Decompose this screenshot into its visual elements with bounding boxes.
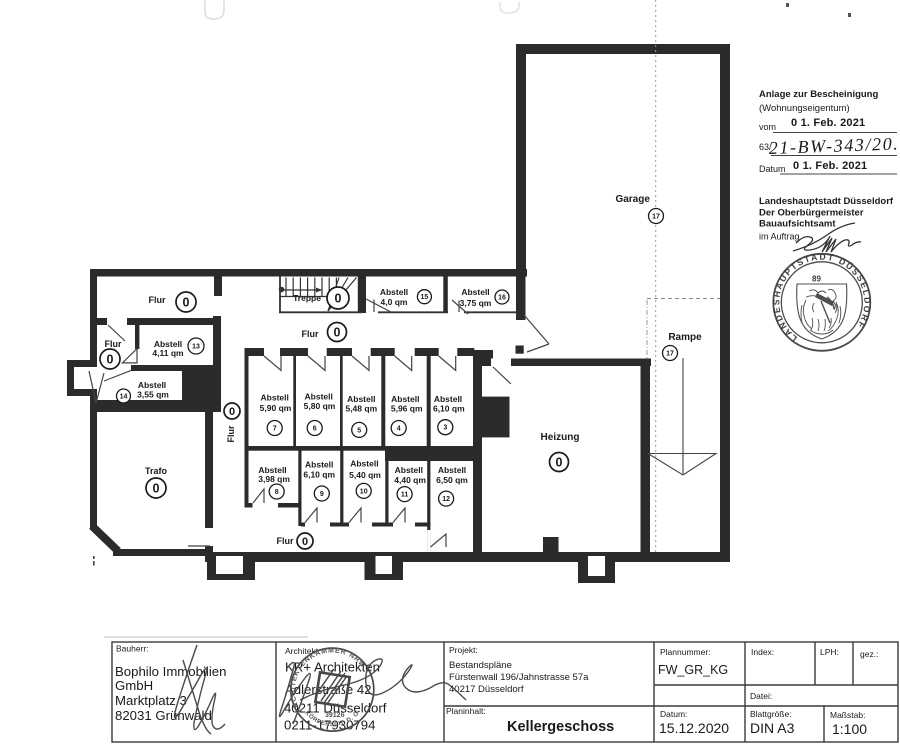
- svg-text:3,55 qm: 3,55 qm: [137, 390, 169, 400]
- svg-text:DIN A3: DIN A3: [750, 720, 795, 736]
- svg-text:6,50 qm: 6,50 qm: [436, 475, 468, 485]
- svg-text:1:100: 1:100: [832, 721, 867, 737]
- svg-text:Projekt:: Projekt:: [449, 645, 478, 655]
- svg-text:Abstell: Abstell: [391, 394, 419, 404]
- svg-text:0 1. Feb. 2021: 0 1. Feb. 2021: [791, 117, 865, 129]
- svg-text:12: 12: [442, 496, 450, 503]
- svg-text:Plannummer:: Plannummer:: [660, 647, 711, 657]
- svg-text:Abstell: Abstell: [434, 394, 462, 404]
- svg-text:0: 0: [556, 456, 563, 470]
- svg-text:Abstell: Abstell: [350, 459, 378, 469]
- svg-text:5,90 qm: 5,90 qm: [260, 403, 292, 413]
- svg-text:7: 7: [273, 426, 277, 433]
- svg-text:Abstell: Abstell: [395, 465, 423, 475]
- svg-text:Anlage zur Bescheinigung: Anlage zur Bescheinigung: [759, 89, 878, 100]
- svg-text:Rampe: Rampe: [668, 332, 702, 343]
- svg-text:5,80 qm: 5,80 qm: [304, 401, 336, 411]
- svg-text:LPH:: LPH:: [820, 647, 839, 657]
- svg-text:0: 0: [335, 292, 342, 306]
- svg-text:4,0 qm: 4,0 qm: [381, 297, 408, 307]
- svg-text:Abstell: Abstell: [380, 287, 408, 297]
- svg-text:vom: vom: [759, 122, 776, 132]
- svg-text:0: 0: [107, 353, 114, 367]
- svg-text:0: 0: [153, 482, 160, 496]
- svg-text:0: 0: [302, 536, 308, 548]
- svg-text:0: 0: [183, 296, 190, 310]
- svg-text:Planinhalt:: Planinhalt:: [446, 706, 486, 716]
- svg-text:5: 5: [357, 427, 361, 434]
- svg-text:Datei:: Datei:: [750, 691, 772, 701]
- svg-text:Abstell: Abstell: [261, 393, 289, 403]
- svg-text:13: 13: [192, 344, 200, 351]
- svg-text:14: 14: [120, 394, 128, 401]
- svg-text:Landeshauptstadt Düsseldorf: Landeshauptstadt Düsseldorf: [759, 196, 894, 207]
- svg-text:Flur: Flur: [149, 295, 166, 305]
- svg-text:16: 16: [498, 295, 506, 302]
- svg-text:(Wohnungseigentum): (Wohnungseigentum): [759, 103, 850, 114]
- svg-text:5,40 qm: 5,40 qm: [349, 470, 381, 480]
- svg-text:17: 17: [652, 214, 660, 221]
- svg-text:Flur: Flur: [105, 339, 122, 349]
- svg-text:Abstell: Abstell: [461, 287, 489, 297]
- svg-text:3,98 qm: 3,98 qm: [258, 474, 290, 484]
- svg-text:Datum: Datum: [759, 164, 786, 174]
- svg-text:gez.:: gez.:: [860, 649, 878, 659]
- svg-text:Bauherr:: Bauherr:: [116, 644, 149, 654]
- svg-text:6,10 qm: 6,10 qm: [303, 470, 335, 480]
- svg-text:FW_GR_KG: FW_GR_KG: [658, 663, 728, 677]
- svg-text:Flur: Flur: [226, 425, 236, 442]
- svg-text:10: 10: [360, 488, 368, 495]
- svg-text:Garage: Garage: [615, 194, 650, 205]
- svg-text:89: 89: [812, 275, 821, 284]
- svg-text:9: 9: [320, 491, 324, 498]
- svg-text:8: 8: [275, 489, 279, 496]
- svg-text:Blattgröße:: Blattgröße:: [750, 709, 792, 719]
- svg-text:Abstell: Abstell: [438, 465, 466, 475]
- svg-text:4,11 qm: 4,11 qm: [152, 348, 184, 358]
- svg-text:0: 0: [334, 326, 341, 340]
- svg-text:im Auftrag: im Auftrag: [759, 232, 800, 242]
- svg-text:4: 4: [397, 426, 401, 433]
- svg-text:3: 3: [443, 425, 447, 432]
- svg-text:Bestandspläne: Bestandspläne: [449, 660, 512, 671]
- svg-text:Heizung: Heizung: [541, 432, 580, 443]
- svg-text:15: 15: [421, 294, 429, 301]
- svg-text:Datum:: Datum:: [660, 709, 687, 719]
- svg-text:4,40 qm: 4,40 qm: [394, 475, 426, 485]
- svg-text:Maßstab:: Maßstab:: [830, 710, 865, 720]
- svg-text:Abstell: Abstell: [138, 380, 166, 390]
- svg-text:Bauaufsichtsamt: Bauaufsichtsamt: [759, 219, 836, 230]
- svg-text:Fürstenwall 196/Jahnstrasse 57: Fürstenwall 196/Jahnstrasse 57a: [449, 672, 589, 683]
- svg-text:40217 Düsseldorf: 40217 Düsseldorf: [449, 684, 524, 695]
- svg-text:3,75 qm: 3,75 qm: [460, 298, 492, 308]
- svg-text:39126: 39126: [325, 712, 345, 719]
- svg-text:21-BW-343/20.: 21-BW-343/20.: [768, 133, 899, 158]
- svg-text:Flur: Flur: [277, 536, 294, 546]
- svg-text:15.12.2020: 15.12.2020: [659, 720, 729, 736]
- svg-text:Index:: Index:: [751, 647, 774, 657]
- svg-text:Bophilo Immobilien: Bophilo Immobilien: [115, 664, 226, 679]
- svg-text:5,48 qm: 5,48 qm: [345, 404, 377, 414]
- svg-text:Abstell: Abstell: [305, 392, 333, 402]
- svg-text:5,96 qm: 5,96 qm: [391, 404, 423, 414]
- svg-text:Kellergeschoss: Kellergeschoss: [507, 719, 614, 735]
- svg-text:Abstell: Abstell: [347, 394, 375, 404]
- svg-text:GmbH: GmbH: [115, 678, 153, 693]
- svg-text:0: 0: [229, 406, 235, 418]
- svg-text:82031 Grünwald: 82031 Grünwald: [115, 708, 212, 723]
- svg-text:11: 11: [401, 492, 409, 499]
- svg-text:Treppe: Treppe: [293, 293, 321, 303]
- svg-text:6,10 qm: 6,10 qm: [433, 404, 465, 414]
- svg-text:Trafo: Trafo: [145, 466, 168, 476]
- svg-text:Der Oberbürgermeister: Der Oberbürgermeister: [759, 208, 864, 219]
- svg-text:Abstell: Abstell: [305, 460, 333, 470]
- svg-text:17: 17: [666, 351, 674, 358]
- svg-text:0 1. Feb. 2021: 0 1. Feb. 2021: [793, 160, 867, 172]
- svg-text:KÖRPERSCH. D. ÖFF. RECHTS: KÖRPERSCH. D. ÖFF. RECHTS: [0, 0, 361, 728]
- svg-text:6: 6: [313, 426, 317, 433]
- svg-text:Flur: Flur: [302, 329, 319, 339]
